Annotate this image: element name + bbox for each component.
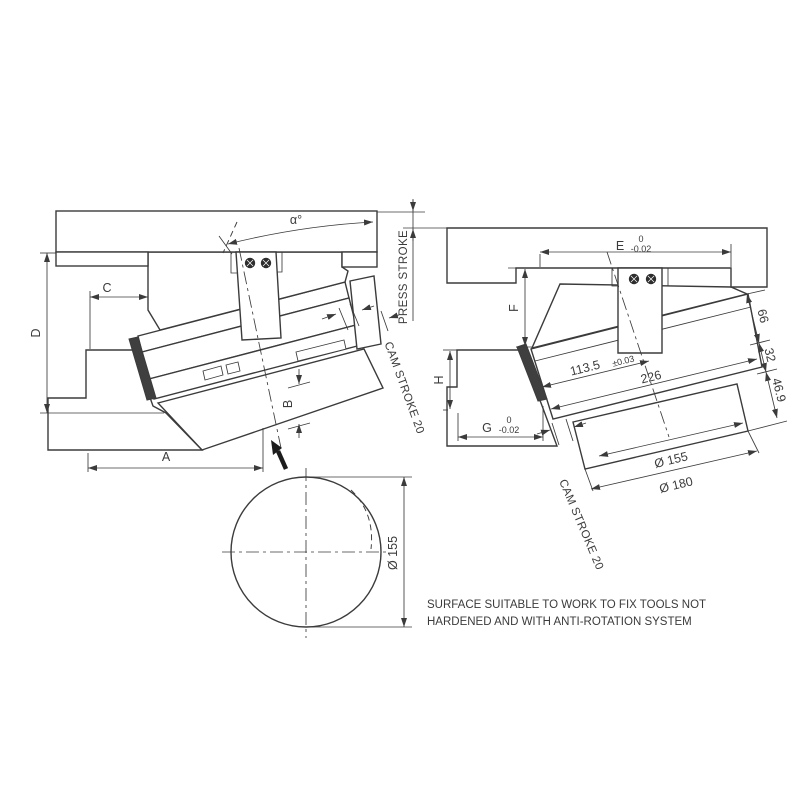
upper-plate [56,211,377,252]
left-underplate [56,252,148,266]
dim-e-tol-upper: 0 [638,234,643,244]
dim-e-label: E [616,239,624,253]
dim-g-label: G [482,421,492,435]
technical-drawing: α° PRESS STROKE CAM STROKE 20 D C B [0,0,800,800]
pocket-shoulder [662,268,668,286]
stroke-tick [566,419,573,441]
motion-arrow-icon [271,440,286,469]
dim-32-label: 32 [761,347,778,364]
dim-f-label: F [507,304,521,312]
left-view: α° PRESS STROKE CAM STROKE 20 D C B [29,199,447,472]
note-line-2: HARDENED AND WITH ANTI-ROTATION SYSTEM [427,616,692,628]
dim-b-label: B [281,400,295,408]
note-line-1: SURFACE SUITABLE TO WORK TO FIX TOOLS NO… [427,599,706,611]
dim-g-tol-lower: -0.02 [499,425,520,435]
dim-c-label: C [102,281,111,295]
press-stroke-label: PRESS STROKE [398,230,410,324]
stroke-tick [381,311,388,331]
ext-tick [748,421,787,431]
upper-plate [447,228,767,287]
screw-icon [245,258,255,268]
dim-g-tol-upper: 0 [506,415,511,425]
screw-icon [629,274,639,284]
dim-a-label: A [162,450,171,464]
ext-line [585,469,593,491]
bottom-circle-view: Ø 155 [222,468,412,638]
ext-tick [747,290,765,294]
screw-icon [646,274,656,284]
note-text: SURFACE SUITABLE TO WORK TO FIX TOOLS NO… [427,599,706,628]
screw-icon [261,258,271,268]
circle-diameter-label: Ø 155 [386,536,400,570]
ext-line [748,431,759,453]
right-underplate [342,252,377,267]
cam-stroke-label: CAM STROKE 20 [556,478,605,572]
dim-66-label: 66 [754,308,771,325]
dim-h-label: H [432,375,446,384]
dia-180-label: Ø 180 [658,474,694,496]
right-view: E 0 -0.02 F H G 0 -0.02 113.5 ±0.03 226 [432,228,789,572]
rotated-position-arc [351,490,372,549]
dim-469-label: 46.9 [769,377,788,404]
alpha-label: α° [290,213,302,227]
cam-stroke-label: CAM STROKE 20 [382,340,427,435]
dim-d-label: D [29,328,43,337]
ext-tick [757,369,777,374]
dim-e-tol-lower: -0.02 [631,244,652,254]
